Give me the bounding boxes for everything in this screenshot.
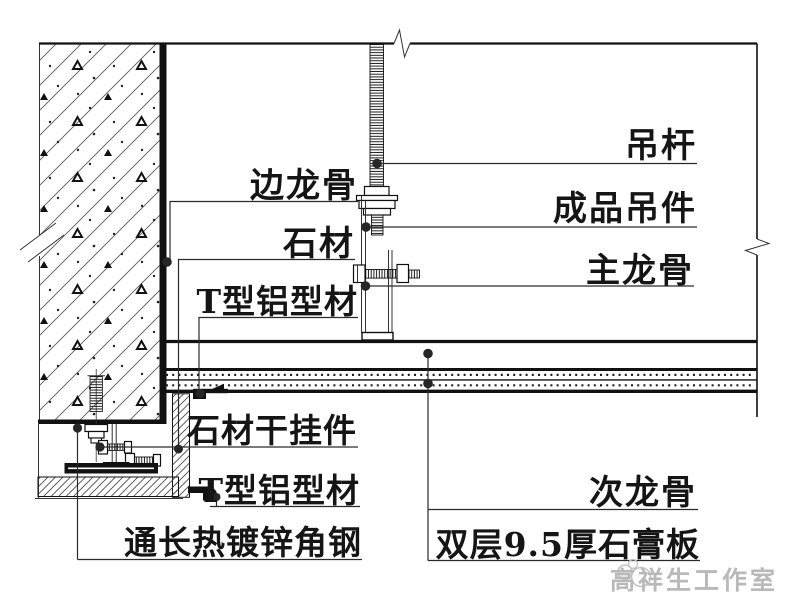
label-tong-chang-re-du-xin-jiao-gang: 通长热镀锌角钢 (124, 523, 362, 562)
label-shi-cai: 石材 (282, 224, 355, 264)
leader-dot-zhu-long-gu (361, 281, 371, 291)
drawing-canvas: 吊杆 成品吊件 主龙骨 边龙骨 石材 T型铝型材 石材干挂件 T型铝型材 通长热… (0, 0, 799, 610)
hanger-assembly (354, 44, 420, 340)
label-t-xing-lv-xing-cai-lower: T型铝型材 (198, 471, 360, 510)
label-shuang-ceng-shi-gao-ban: 双层9.5厚石膏板 (436, 525, 700, 564)
leader-dot-bian-long-gu (162, 257, 172, 267)
break-symbol-top (394, 30, 410, 57)
anchor-nut (89, 432, 105, 439)
label-diao-gan: 吊杆 (625, 126, 697, 166)
leader-dot-tong-chang (73, 423, 82, 432)
clamp-bolt-tail (409, 270, 420, 278)
rod-lower-stub (372, 215, 384, 235)
main-keel-web (389, 250, 393, 339)
section-detail-drawing: 吊杆 成品吊件 主龙骨 边龙骨 石材 T型铝型材 石材干挂件 T型铝型材 通长热… (0, 0, 799, 610)
leader-dot-t-upper (196, 389, 205, 398)
main-keel-bottom-flange (362, 333, 393, 341)
threaded-hanger-rod (370, 44, 384, 196)
clamp-bolt-head (354, 265, 366, 283)
wall-soffit-line (38, 420, 167, 425)
ceiling-layers (163, 342, 757, 392)
leader-dot-shuang-ceng (423, 379, 433, 389)
dry-hang-bolt-b-shaft (135, 457, 154, 463)
hanger-nut-top (365, 187, 390, 196)
clamp-bolt-nut (397, 265, 409, 283)
hanger-plate (357, 196, 398, 201)
leader-dot-ci-long-gu (423, 349, 433, 359)
label-bian-long-gu: 边龙骨 (250, 166, 358, 206)
clamp-bolt-shaft (365, 270, 397, 279)
expansion-anchor-stud (90, 377, 102, 412)
leader-dot-shi-cai (174, 445, 183, 454)
stone-panel-bottom (38, 477, 179, 497)
watermark: 高祥生工作室 (610, 560, 778, 596)
annotation-labels: 吊杆 成品吊件 主龙骨 边龙骨 石材 T型铝型材 石材干挂件 T型铝型材 通长热… (124, 126, 700, 564)
label-zhu-long-gu: 主龙骨 (586, 251, 694, 291)
hanger-nut-low (364, 209, 391, 216)
leader-dot-shi-cai-gan-gua-jian (95, 442, 104, 451)
label-shi-cai-gan-gua-jian: 石材干挂件 (186, 411, 357, 450)
wall-face-line (160, 43, 167, 421)
watermark-text: 高祥生工作室 (610, 566, 778, 595)
label-cheng-pin-diao-jian: 成品吊件 (553, 189, 697, 229)
leader-dot-diao-gan (372, 159, 382, 169)
leader-dot-cheng-pin (361, 222, 371, 232)
anchor-washer (85, 425, 108, 432)
label-t-xing-lv-xing-cai-upper: T型铝型材 (196, 282, 358, 321)
label-ci-long-gu: 次龙骨 (589, 473, 697, 513)
break-symbol-right (746, 239, 770, 255)
hanger-nut-mid (359, 201, 395, 209)
